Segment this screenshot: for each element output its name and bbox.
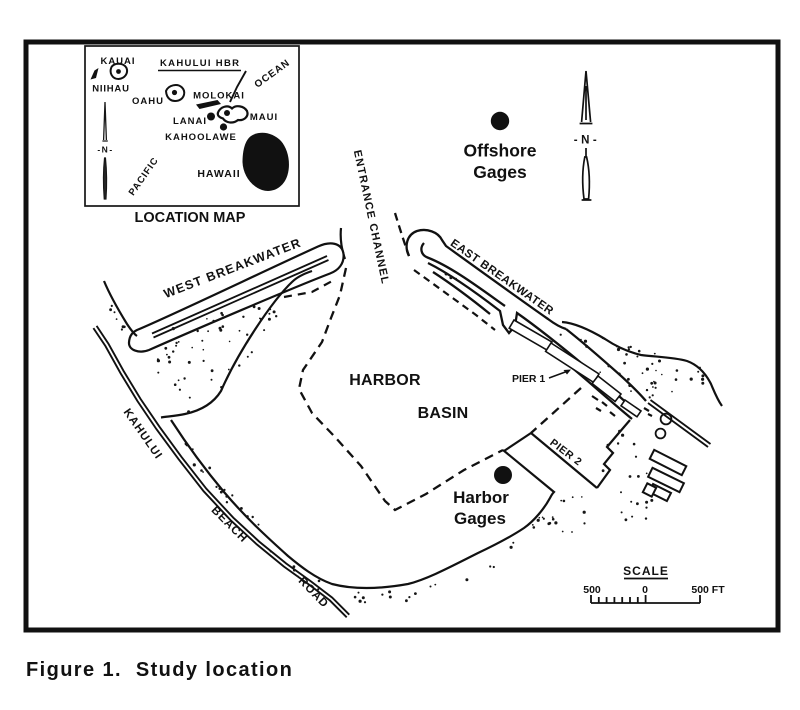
svg-text:Gages: Gages (454, 509, 506, 528)
svg-text:HAWAII: HAWAII (197, 168, 240, 180)
svg-text:SCALE: SCALE (623, 564, 669, 578)
svg-text:LOCATION MAP: LOCATION MAP (135, 210, 246, 226)
svg-text:NIIHAU: NIIHAU (92, 84, 130, 95)
svg-text:PACIFIC: PACIFIC (127, 155, 161, 198)
svg-text:OCEAN: OCEAN (253, 57, 293, 90)
svg-text:HARBOR: HARBOR (349, 372, 421, 389)
svg-text:Figure 1. Study location: Figure 1. Study location (26, 659, 293, 681)
svg-text:BEACH: BEACH (209, 504, 250, 545)
svg-text:KAHULUI: KAHULUI (121, 407, 165, 462)
svg-text:OAHU: OAHU (132, 96, 164, 107)
svg-text:-N-: -N- (97, 145, 113, 155)
svg-text:MAUI: MAUI (250, 112, 278, 123)
svg-text:KAUAI: KAUAI (100, 56, 135, 67)
svg-text:500 FT: 500 FT (691, 584, 725, 596)
svg-text:0: 0 (642, 584, 648, 596)
svg-text:MOLOKAI: MOLOKAI (193, 91, 245, 102)
svg-text:KAHULUI HBR: KAHULUI HBR (160, 58, 240, 69)
svg-text:Harbor: Harbor (453, 488, 509, 507)
svg-text:Offshore: Offshore (464, 141, 537, 161)
svg-text:-N-: -N- (574, 135, 600, 147)
svg-text:PIER 1: PIER 1 (512, 373, 545, 385)
svg-text:ENTRANCE CHANNEL: ENTRANCE CHANNEL (351, 149, 391, 286)
svg-text:LANAI: LANAI (173, 116, 207, 127)
svg-text:KAHOOLAWE: KAHOOLAWE (165, 132, 237, 143)
svg-text:500: 500 (583, 584, 601, 596)
svg-text:Gages: Gages (473, 162, 527, 182)
svg-text:BASIN: BASIN (418, 405, 469, 422)
